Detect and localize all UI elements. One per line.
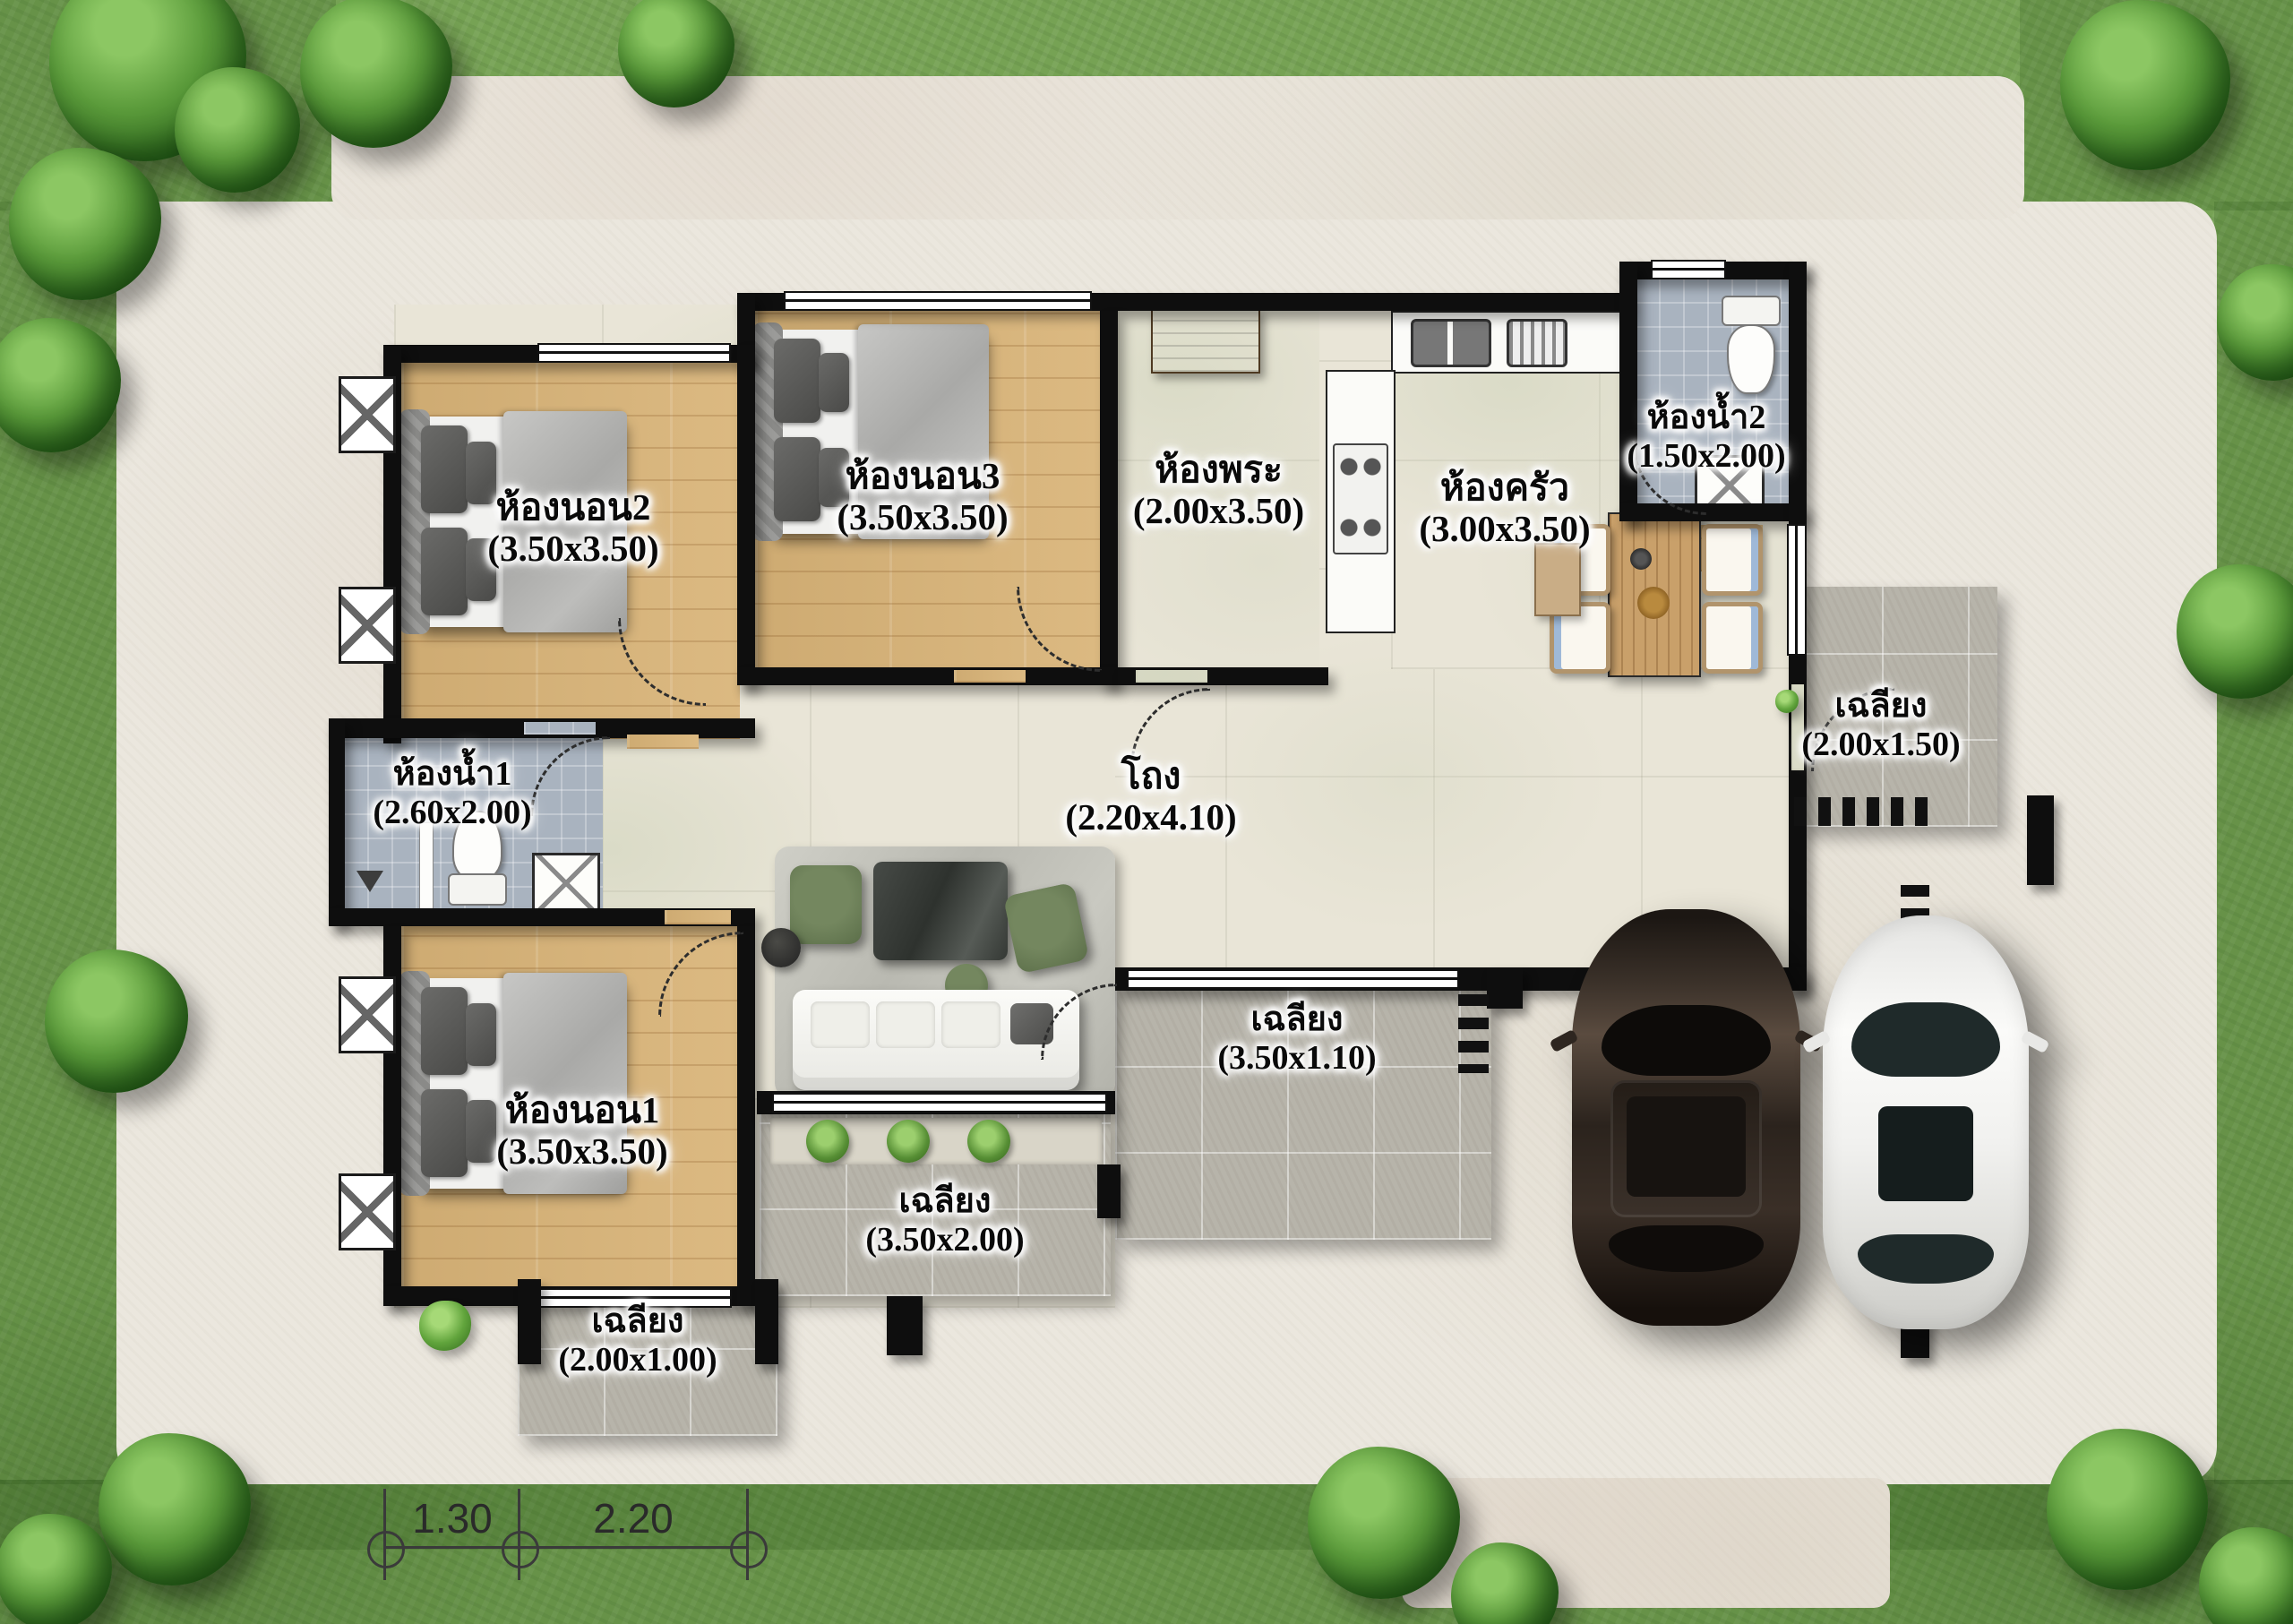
toilet-tank	[1722, 296, 1781, 326]
window-box	[339, 1173, 396, 1250]
kitchen-appliance	[1507, 319, 1567, 367]
dimension-label-1: 1.30	[412, 1494, 493, 1542]
room-dims: (3.50x3.50)	[837, 497, 1008, 538]
potted-plant	[806, 1120, 849, 1163]
dining-chair	[1702, 524, 1763, 596]
door-opening	[1136, 670, 1207, 683]
bed-pillow	[819, 353, 849, 412]
toilet-tank	[448, 873, 507, 906]
porch-pillar	[1487, 967, 1523, 1009]
room-name: เฉลียง	[592, 1302, 684, 1341]
car-windshield	[1602, 1005, 1771, 1076]
wall	[737, 345, 755, 685]
car-white	[1823, 915, 2029, 1329]
door-opening	[954, 670, 1026, 683]
wall	[737, 667, 1118, 685]
window	[784, 291, 1092, 311]
yard-paving-top	[331, 76, 2024, 219]
room-label-bathroom1: ห้องน้ำ1 (2.60x2.00)	[340, 751, 564, 836]
window	[772, 1093, 1107, 1113]
floor-plan-scene: 1.30 2.20	[0, 0, 2293, 1624]
room-name: เฉลียง	[1251, 1001, 1344, 1039]
room-dims: (3.50x3.50)	[496, 1131, 667, 1173]
porch-pillar	[1097, 1164, 1121, 1218]
room-label-bathroom2: ห้องน้ำ2 (1.50x2.00)	[1594, 392, 1818, 482]
room-label-porch-right: เฉลียง (2.00x1.50)	[1769, 685, 1993, 766]
room-name: ห้องครัว	[1440, 468, 1569, 509]
porch-pillar	[887, 1296, 923, 1355]
kitchen-sink	[1411, 319, 1491, 367]
room-label-porch-middle: เฉลียง (3.50x1.10)	[1185, 999, 1409, 1079]
room-label-bedroom2: ห้องนอน2 (3.50x3.50)	[439, 484, 708, 573]
potted-plant	[967, 1120, 1010, 1163]
room-dims: (3.50x1.10)	[1217, 1039, 1376, 1078]
potted-plant	[887, 1120, 930, 1163]
room-name: ห้องนอน1	[505, 1090, 660, 1131]
room-label-bedroom1: ห้องนอน1 (3.50x3.50)	[443, 1088, 721, 1173]
window	[537, 343, 731, 363]
room-name: ห้องน้ำ1	[393, 755, 512, 794]
room-name: ห้องนอน2	[496, 487, 651, 528]
room-label-porch-bottom: เฉลียง (2.00x1.00)	[526, 1301, 750, 1381]
bed-pillow	[421, 987, 468, 1075]
shower-head-icon	[356, 871, 383, 892]
sofa-cushion	[876, 1001, 935, 1048]
room-name: ห้องพระ	[1155, 450, 1283, 491]
window	[1651, 260, 1726, 279]
bed-pillow	[466, 1003, 496, 1066]
room-dims: (2.00x1.50)	[1801, 726, 1960, 764]
room-name: เฉลียง	[899, 1182, 992, 1221]
room-dims: (2.00x1.00)	[558, 1341, 717, 1379]
grass-patch	[2214, 202, 2293, 1484]
room-dims: (2.20x4.10)	[1065, 797, 1236, 838]
dimension-node	[367, 1531, 405, 1568]
room-dims: (3.50x2.00)	[865, 1221, 1024, 1259]
dimension-node	[730, 1531, 768, 1568]
dining-table-decor	[1637, 587, 1670, 619]
window-box	[339, 376, 396, 453]
room-name: ห้องนอน3	[846, 456, 1001, 497]
grass-patch	[0, 1480, 2293, 1550]
porch-steps	[1458, 994, 1489, 1073]
armchair	[790, 865, 862, 944]
window-box	[339, 587, 396, 664]
room-dims: (3.00x3.50)	[1419, 509, 1590, 550]
porch-steps	[1794, 797, 1928, 826]
room-name: ห้องน้ำ2	[1647, 399, 1766, 437]
side-table	[761, 928, 801, 967]
door-opening	[627, 735, 699, 749]
room-label-prayer: ห้องพระ (2.00x3.50)	[1104, 446, 1333, 536]
room-label-hall: โถง (2.20x4.10)	[1039, 754, 1263, 839]
porch-pillar	[2027, 795, 2054, 885]
room-dims: (2.00x3.50)	[1133, 491, 1304, 532]
toilet	[1727, 324, 1775, 394]
room-dims: (1.50x2.00)	[1627, 437, 1785, 476]
porch-pillar	[755, 1279, 778, 1364]
dining-chair	[1702, 602, 1763, 674]
room-dims: (2.60x2.00)	[373, 794, 531, 832]
dimension-node	[502, 1531, 539, 1568]
shower-tray	[532, 853, 600, 914]
room-name: เฉลียง	[1835, 687, 1928, 726]
sofa-cushion	[941, 1001, 1001, 1048]
car-rear-window	[1609, 1225, 1764, 1271]
car-sunroof	[1878, 1106, 1973, 1201]
altar-table	[1151, 309, 1260, 374]
wall	[1619, 503, 1807, 521]
room-dims: (3.50x3.50)	[487, 528, 658, 570]
dimension-line	[383, 1546, 749, 1549]
door-opening	[524, 722, 596, 735]
window	[1787, 524, 1807, 656]
kitchen-cabinet	[1534, 543, 1581, 616]
room-label-bedroom3: ห้องนอน3 (3.50x3.50)	[788, 452, 1057, 542]
room-label-porch-living: เฉลียง (3.50x2.00)	[833, 1181, 1057, 1261]
car-dark	[1572, 909, 1800, 1326]
car-sunroof	[1627, 1096, 1746, 1197]
door-opening	[665, 910, 731, 924]
tree	[0, 1514, 112, 1624]
bed-pillow	[774, 339, 820, 423]
car-windshield	[1851, 1002, 2000, 1077]
window-box	[339, 976, 396, 1053]
dimension-label-2: 2.20	[593, 1494, 674, 1542]
coffee-table	[873, 862, 1008, 960]
room-name: โถง	[1121, 756, 1181, 797]
window	[1127, 969, 1459, 989]
sofa-cushion	[811, 1001, 870, 1048]
